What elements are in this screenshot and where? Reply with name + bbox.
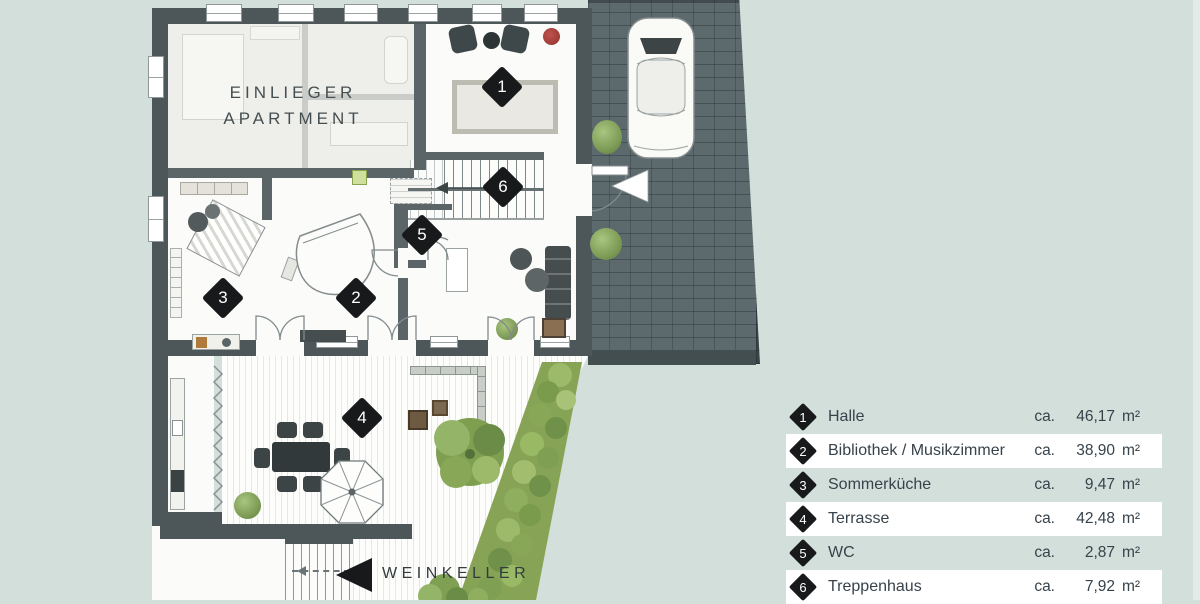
pouf — [205, 204, 220, 219]
grill — [432, 400, 448, 416]
legend-ca: ca. — [1021, 442, 1055, 460]
marker-bibliothek: 2 — [338, 280, 374, 316]
legend-area-value: 38,90 — [1065, 442, 1115, 460]
legend-ca: ca. — [1021, 408, 1055, 426]
driveway-paving — [588, 0, 760, 364]
chair — [303, 476, 323, 492]
marker-number: 3 — [205, 280, 241, 316]
window — [408, 4, 438, 22]
window — [344, 4, 378, 22]
chair — [277, 422, 297, 438]
legend-row: 1 Halle ca. 46,17 m² — [786, 400, 1162, 434]
diamond-icon: 2 — [790, 438, 816, 464]
cellar-stair-guide — [292, 570, 350, 572]
wall-right — [576, 8, 592, 164]
legend-row: 2 Bibliothek / Musikzimmer ca. 38,90 m² — [786, 434, 1162, 468]
apartment-wardrobe — [250, 26, 300, 40]
cooktop — [171, 470, 184, 492]
indoor-plant — [496, 318, 518, 340]
diamond-icon: 6 — [790, 574, 816, 600]
driveway-bottom-wall — [588, 350, 756, 365]
marker-halle: 1 — [484, 69, 520, 105]
chair — [254, 448, 270, 468]
marker-number: 5 — [404, 217, 440, 253]
terrace-door-gap — [488, 340, 534, 356]
armchair — [448, 24, 479, 55]
apartment-bathtub — [384, 36, 408, 84]
legend-unit: m² — [1115, 476, 1150, 494]
garden-wall — [477, 366, 486, 452]
marker-terrasse: 4 — [344, 400, 380, 436]
legend-row: 3 Sommerküche ca. 9,47 m² — [786, 468, 1162, 502]
fireplace — [542, 318, 566, 338]
driveway-bush — [590, 228, 622, 260]
wall-shelf — [170, 248, 182, 318]
armchair — [500, 24, 531, 55]
legend-area-value: 9,47 — [1065, 476, 1115, 494]
sideboard — [300, 330, 346, 342]
legend-unit: m² — [1115, 408, 1150, 426]
legend-room-name: Terrasse — [828, 510, 1021, 528]
wc-wall — [394, 204, 452, 210]
terrace-door-gap — [368, 340, 416, 356]
legend-room-name: Treppenhaus — [828, 578, 1021, 596]
sink — [222, 338, 231, 347]
terrace-door-gap — [256, 340, 304, 356]
legend-row: 6 Treppenhaus ca. 7,92 m² — [786, 570, 1162, 604]
window — [148, 56, 164, 98]
marker-number: 2 — [338, 280, 374, 316]
diamond-icon: 5 — [790, 540, 816, 566]
weinkeller-label: WEINKELLER — [382, 565, 530, 583]
image-edge-strip — [1193, 0, 1200, 600]
terrace-bush — [234, 492, 261, 519]
wall-stair-north — [426, 152, 544, 160]
legend-room-name: WC — [828, 544, 1021, 562]
marker-sommerkueche: 3 — [205, 280, 241, 316]
wine-cellar-stairs — [285, 544, 353, 600]
floor-plan: 1 2 3 4 5 6 EINLIEGER APARTMENT WEINKELL… — [0, 0, 1200, 600]
window — [278, 4, 314, 22]
closet-dashed — [390, 178, 432, 204]
chair — [334, 448, 350, 468]
room-legend: 1 Halle ca. 46,17 m² 2 Bibliothek / Musi… — [786, 400, 1162, 604]
wc-door-gap — [426, 260, 448, 268]
apartment-label-line2: APARTMENT — [168, 106, 418, 132]
driveway-bush — [592, 120, 622, 154]
sofa — [545, 246, 571, 320]
window — [430, 336, 458, 348]
legend-row: 5 WC ca. 2,87 m² — [786, 536, 1162, 570]
marker-number: 1 — [484, 69, 520, 105]
legend-room-name: Bibliothek / Musikzimmer — [828, 442, 1021, 460]
wc-basin-cabinet — [446, 248, 468, 292]
stair-rail — [408, 188, 544, 191]
legend-room-name: Sommerküche — [828, 476, 1021, 494]
entrance-door-gap — [576, 164, 592, 216]
pouf — [525, 268, 549, 292]
annex-sink — [172, 420, 183, 436]
fire-bowl — [408, 410, 428, 430]
window — [524, 4, 558, 22]
chair — [277, 476, 297, 492]
legend-ca: ca. — [1021, 578, 1055, 596]
folding-door — [214, 366, 222, 510]
window — [148, 196, 164, 242]
apartment-label-line1: EINLIEGER — [168, 80, 418, 106]
diamond-icon: 1 — [790, 404, 816, 430]
legend-unit: m² — [1115, 442, 1150, 460]
wall-right — [576, 216, 592, 352]
pouf — [510, 248, 532, 270]
sideboard — [180, 182, 248, 195]
legend-area-value: 2,87 — [1065, 544, 1115, 562]
marker-number: 6 — [485, 169, 521, 205]
diamond-icon: 4 — [790, 506, 816, 532]
apartment-label: EINLIEGER APARTMENT — [168, 80, 418, 133]
chair — [303, 422, 323, 438]
wall-stub — [262, 168, 272, 220]
wall-apartment-south — [168, 168, 414, 178]
legend-ca: ca. — [1021, 476, 1055, 494]
window — [206, 4, 242, 22]
red-plant — [543, 28, 560, 45]
legend-area-value: 7,92 — [1065, 578, 1115, 596]
dining-table — [272, 442, 330, 472]
cutting-board — [196, 337, 207, 348]
legend-unit: m² — [1115, 544, 1150, 562]
legend-area-value: 46,17 — [1065, 408, 1115, 426]
marker-treppenhaus: 6 — [485, 169, 521, 205]
cellar-stair-wall — [285, 536, 353, 544]
lamp-table — [352, 170, 367, 185]
garden-wall — [410, 366, 486, 375]
legend-ca: ca. — [1021, 510, 1055, 528]
legend-unit: m² — [1115, 510, 1150, 528]
marker-wc: 5 — [404, 217, 440, 253]
legend-unit: m² — [1115, 578, 1150, 596]
marker-number: 4 — [344, 400, 380, 436]
diamond-icon: 3 — [790, 472, 816, 498]
legend-area-value: 42,48 — [1065, 510, 1115, 528]
side-table — [483, 32, 500, 49]
legend-row: 4 Terrasse ca. 42,48 m² — [786, 502, 1162, 536]
legend-ca: ca. — [1021, 544, 1055, 562]
legend-room-name: Halle — [828, 408, 1021, 426]
window — [472, 4, 502, 22]
